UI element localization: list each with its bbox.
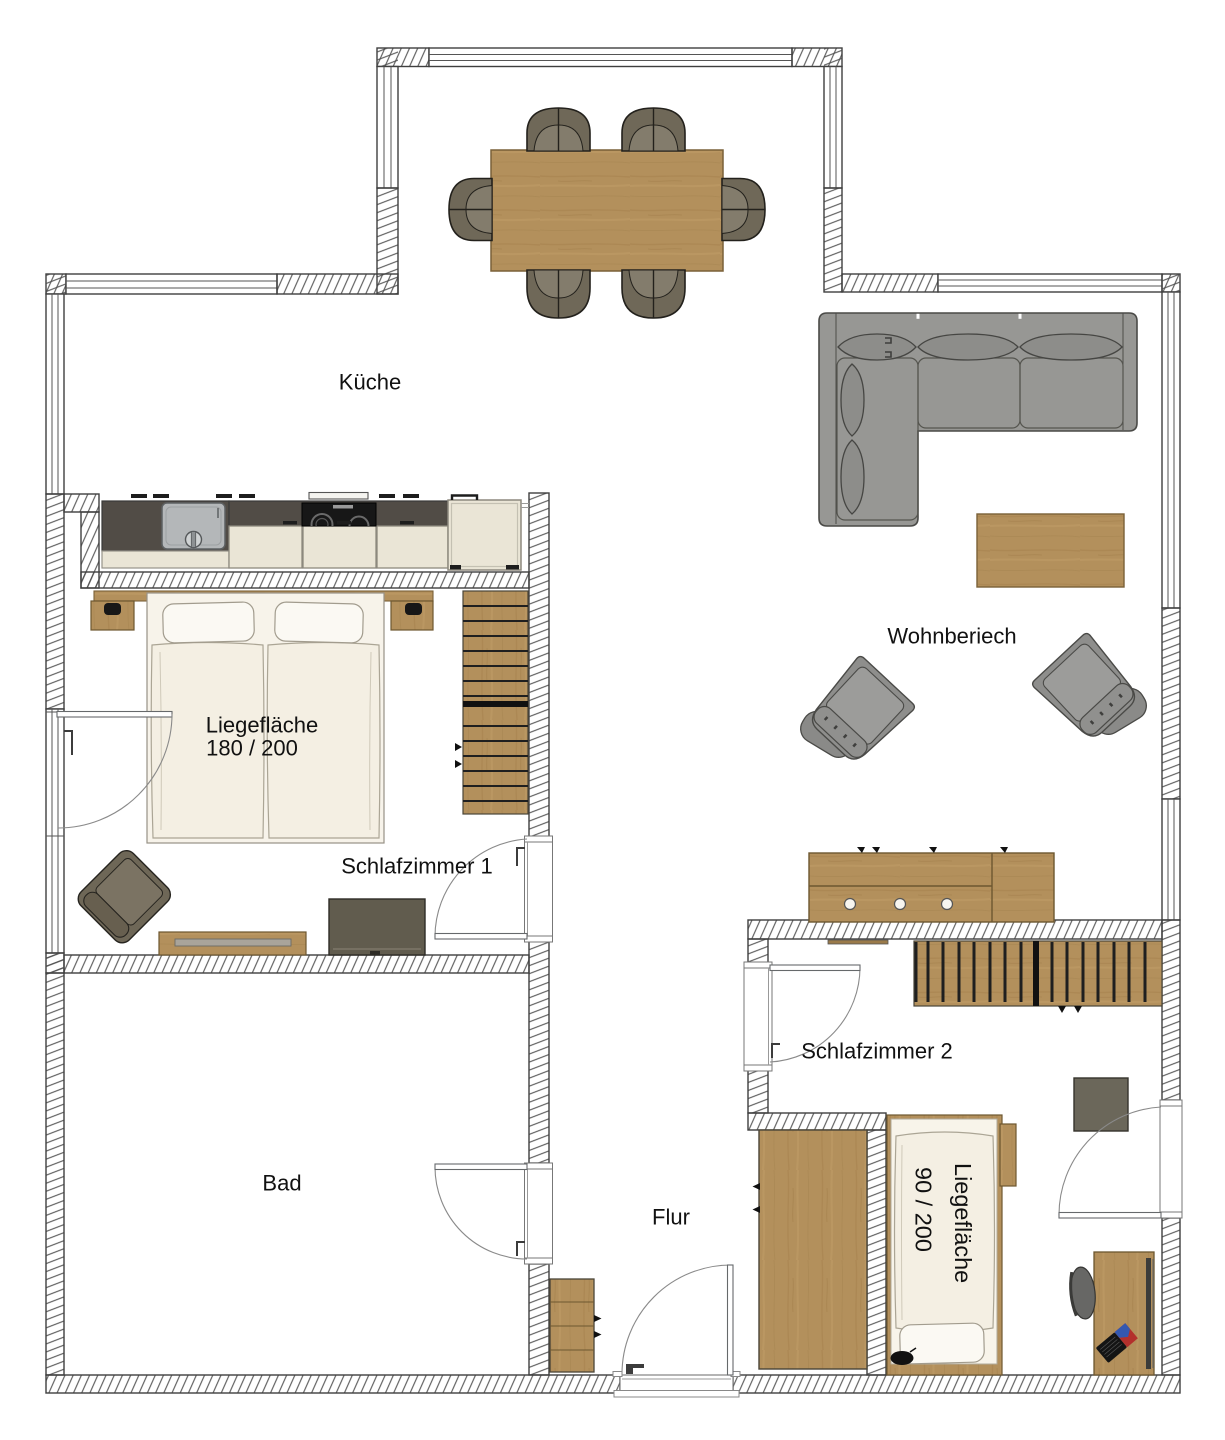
svg-text:Bad: Bad — [262, 1171, 301, 1196]
svg-text:Schlafzimmer 1: Schlafzimmer 1 — [341, 854, 493, 879]
svg-text:90 / 200: 90 / 200 — [911, 1167, 937, 1252]
svg-text:Wohnberiech: Wohnberiech — [887, 624, 1016, 649]
svg-text:Schlafzimmer 2: Schlafzimmer 2 — [801, 1039, 953, 1064]
svg-text:180 / 200: 180 / 200 — [206, 736, 298, 761]
svg-text:Liegefläche: Liegefläche — [950, 1163, 976, 1283]
svg-text:Flur: Flur — [652, 1205, 690, 1230]
svg-text:Liegefläche: Liegefläche — [206, 713, 319, 738]
svg-text:Küche: Küche — [339, 370, 401, 395]
